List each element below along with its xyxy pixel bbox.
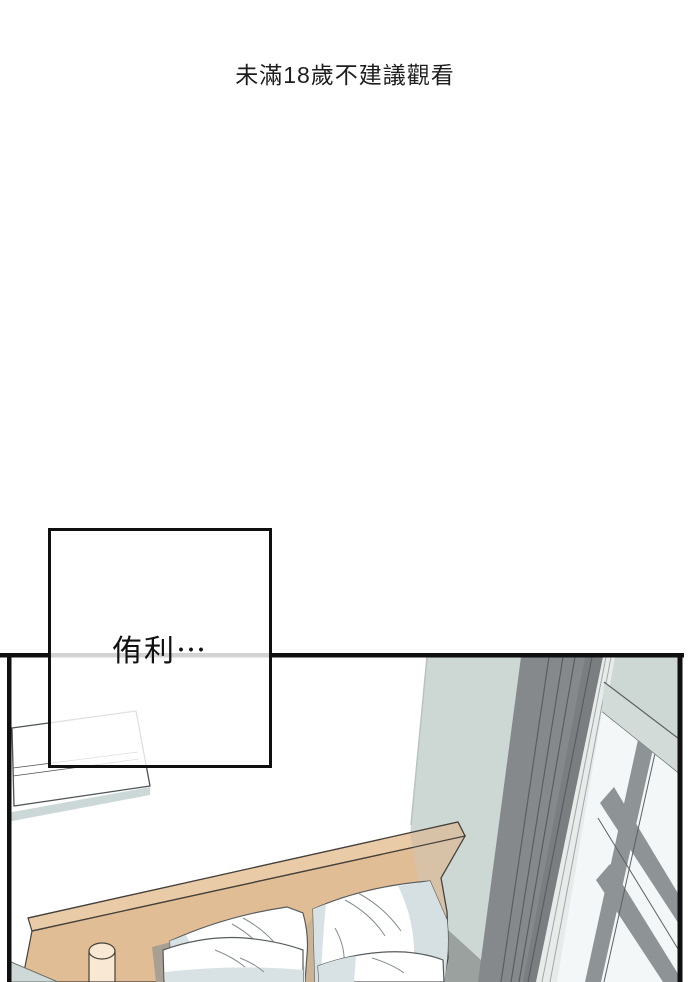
comic-panel bbox=[0, 0, 690, 982]
pillow-front-left bbox=[163, 938, 303, 982]
speech-bubble: 侑利⋯ bbox=[48, 528, 272, 768]
comic-page: 未滿18歲不建議觀看 bbox=[0, 0, 690, 982]
speech-bubble-text: 侑利⋯ bbox=[112, 626, 208, 670]
bedpost-knob bbox=[89, 943, 115, 982]
